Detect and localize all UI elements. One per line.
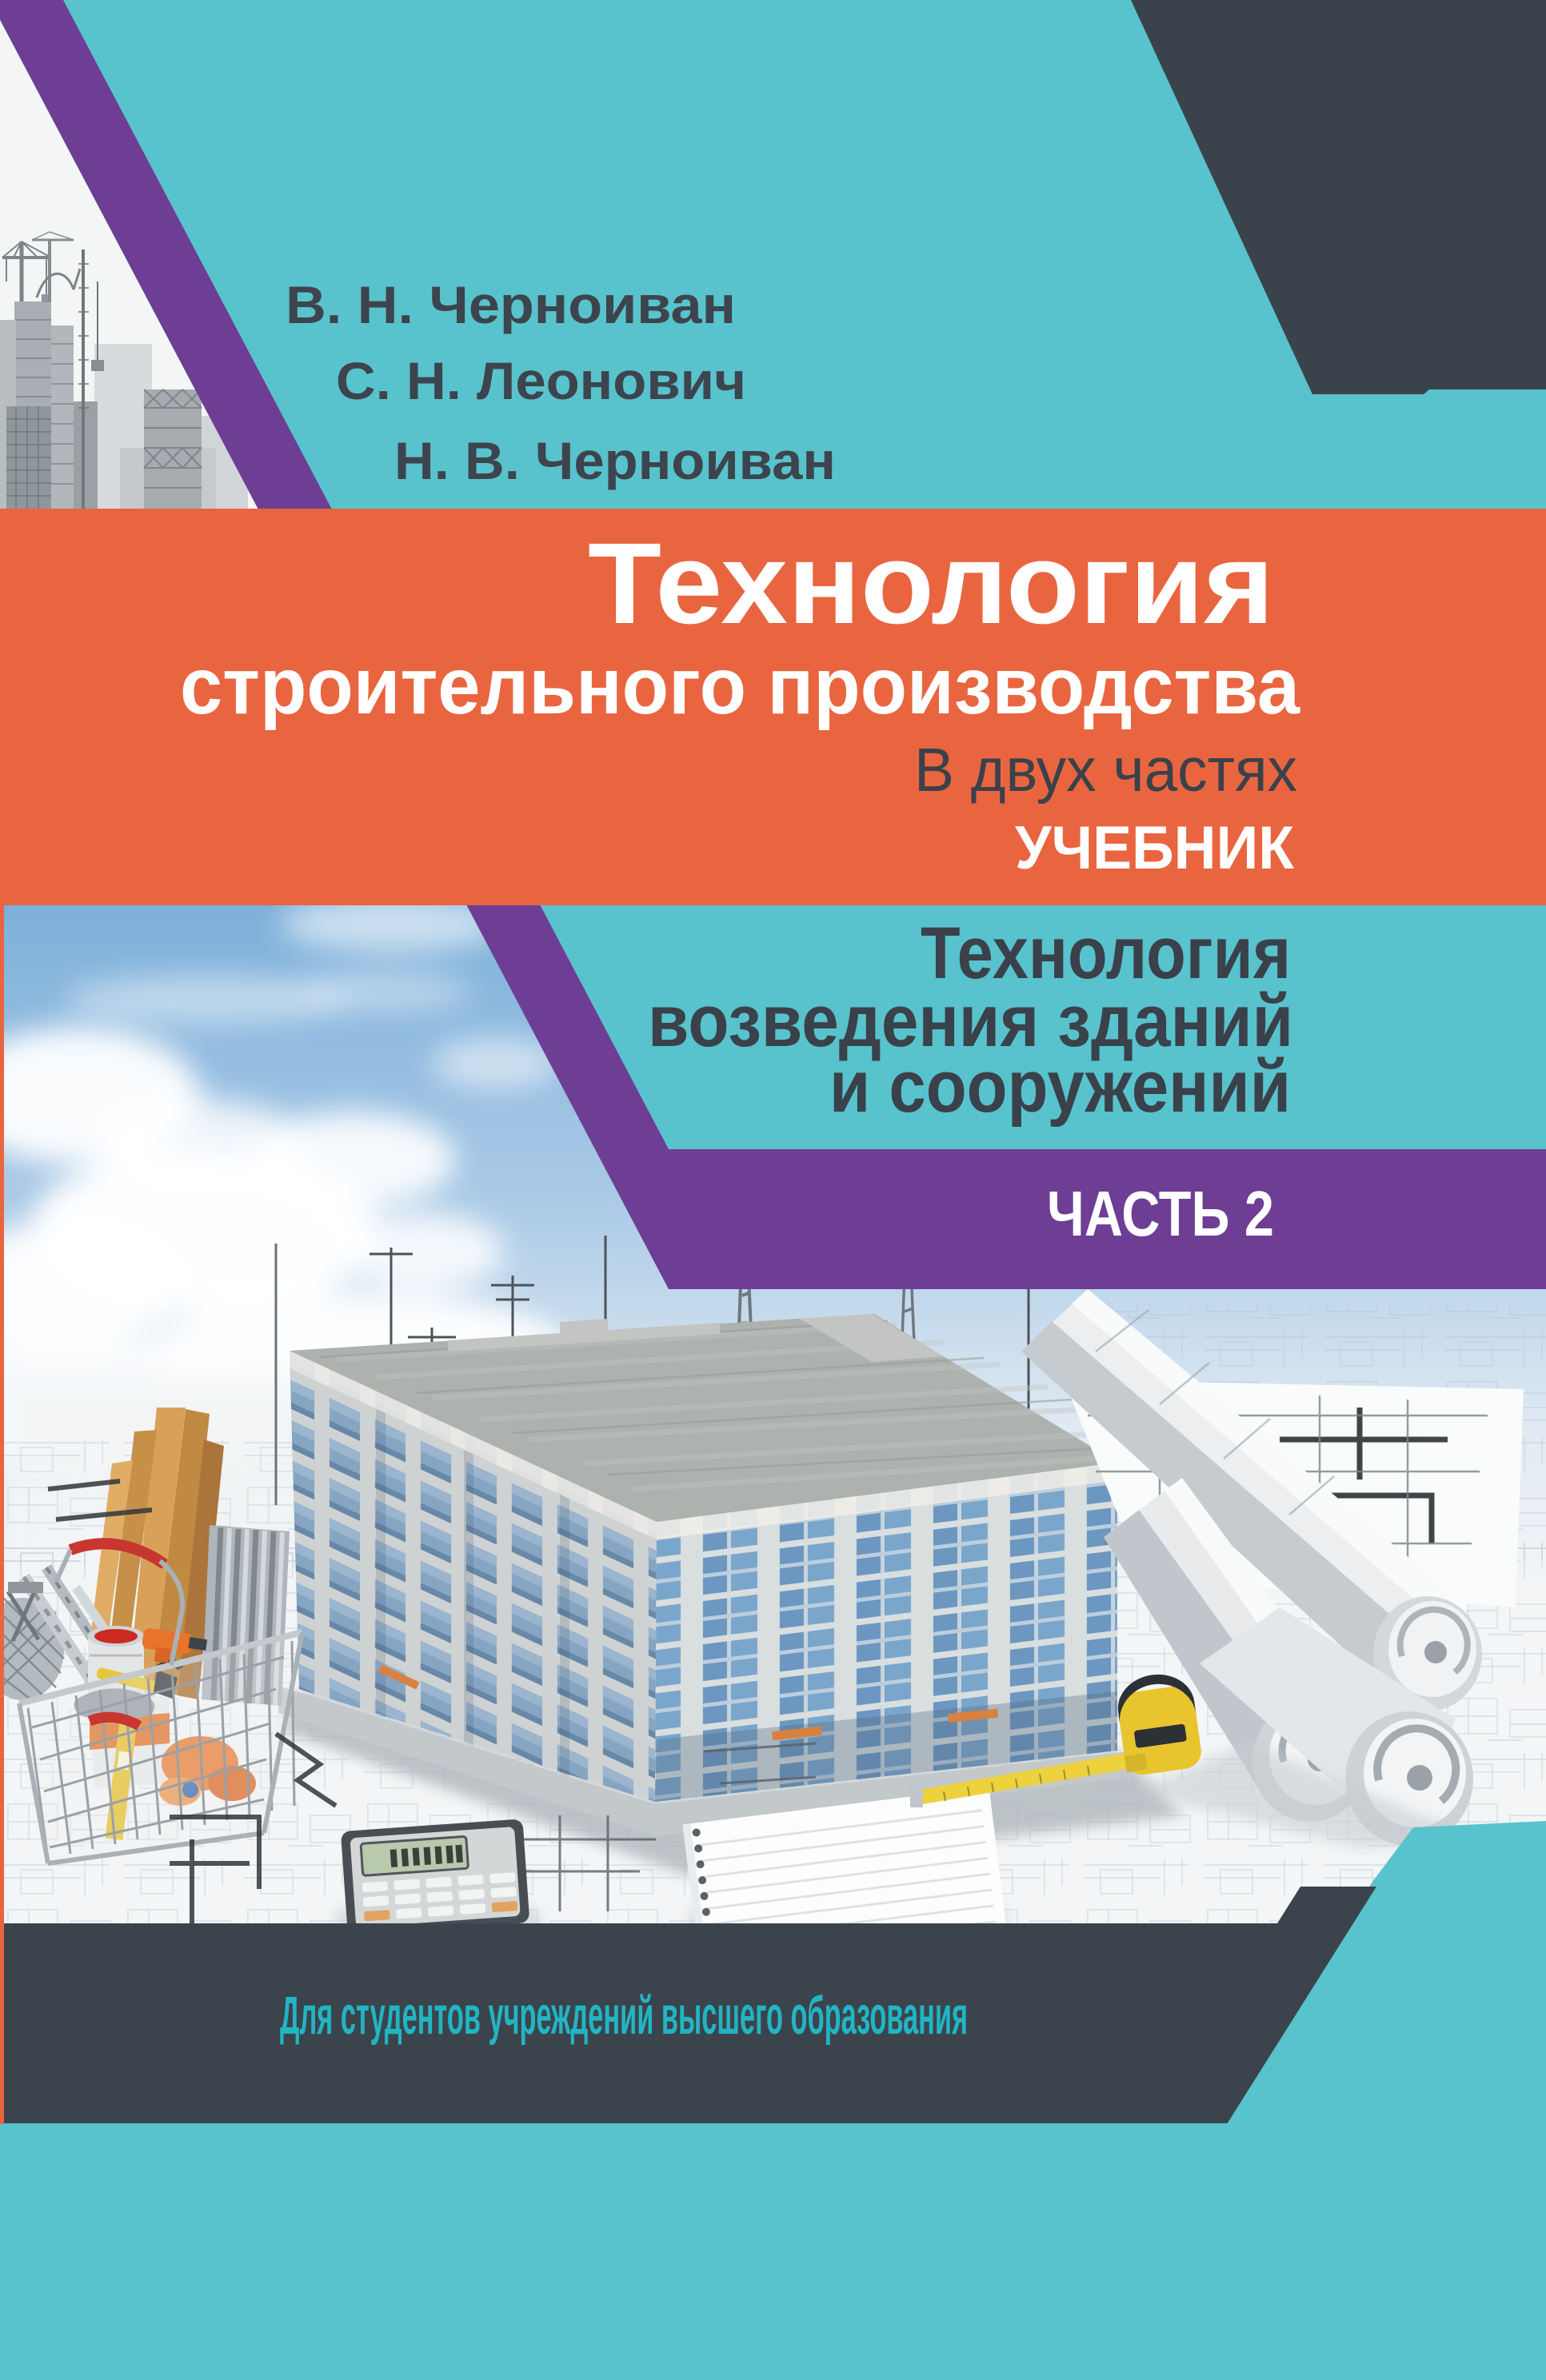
svg-text:Технология: Технология — [588, 519, 1274, 648]
svg-text:Для студентов учреждений высше: Для студентов учреждений высшего образов… — [280, 1986, 968, 2046]
svg-text:строительного производства: строительного производства — [180, 641, 1300, 731]
svg-text:В. Н. Черноиван: В. Н. Черноиван — [286, 275, 736, 334]
svg-text:и сооружений: и сооружений — [829, 1046, 1291, 1128]
svg-text:С. Н. Леонович: С. Н. Леонович — [336, 351, 746, 410]
svg-text:УЧЕБНИК: УЧЕБНИК — [1015, 814, 1295, 882]
svg-text:ЧАСТЬ 2: ЧАСТЬ 2 — [1047, 1178, 1274, 1249]
svg-text:Н. В. Черноиван: Н. В. Черноиван — [394, 431, 836, 490]
svg-text:В двух частях: В двух частях — [914, 736, 1297, 805]
